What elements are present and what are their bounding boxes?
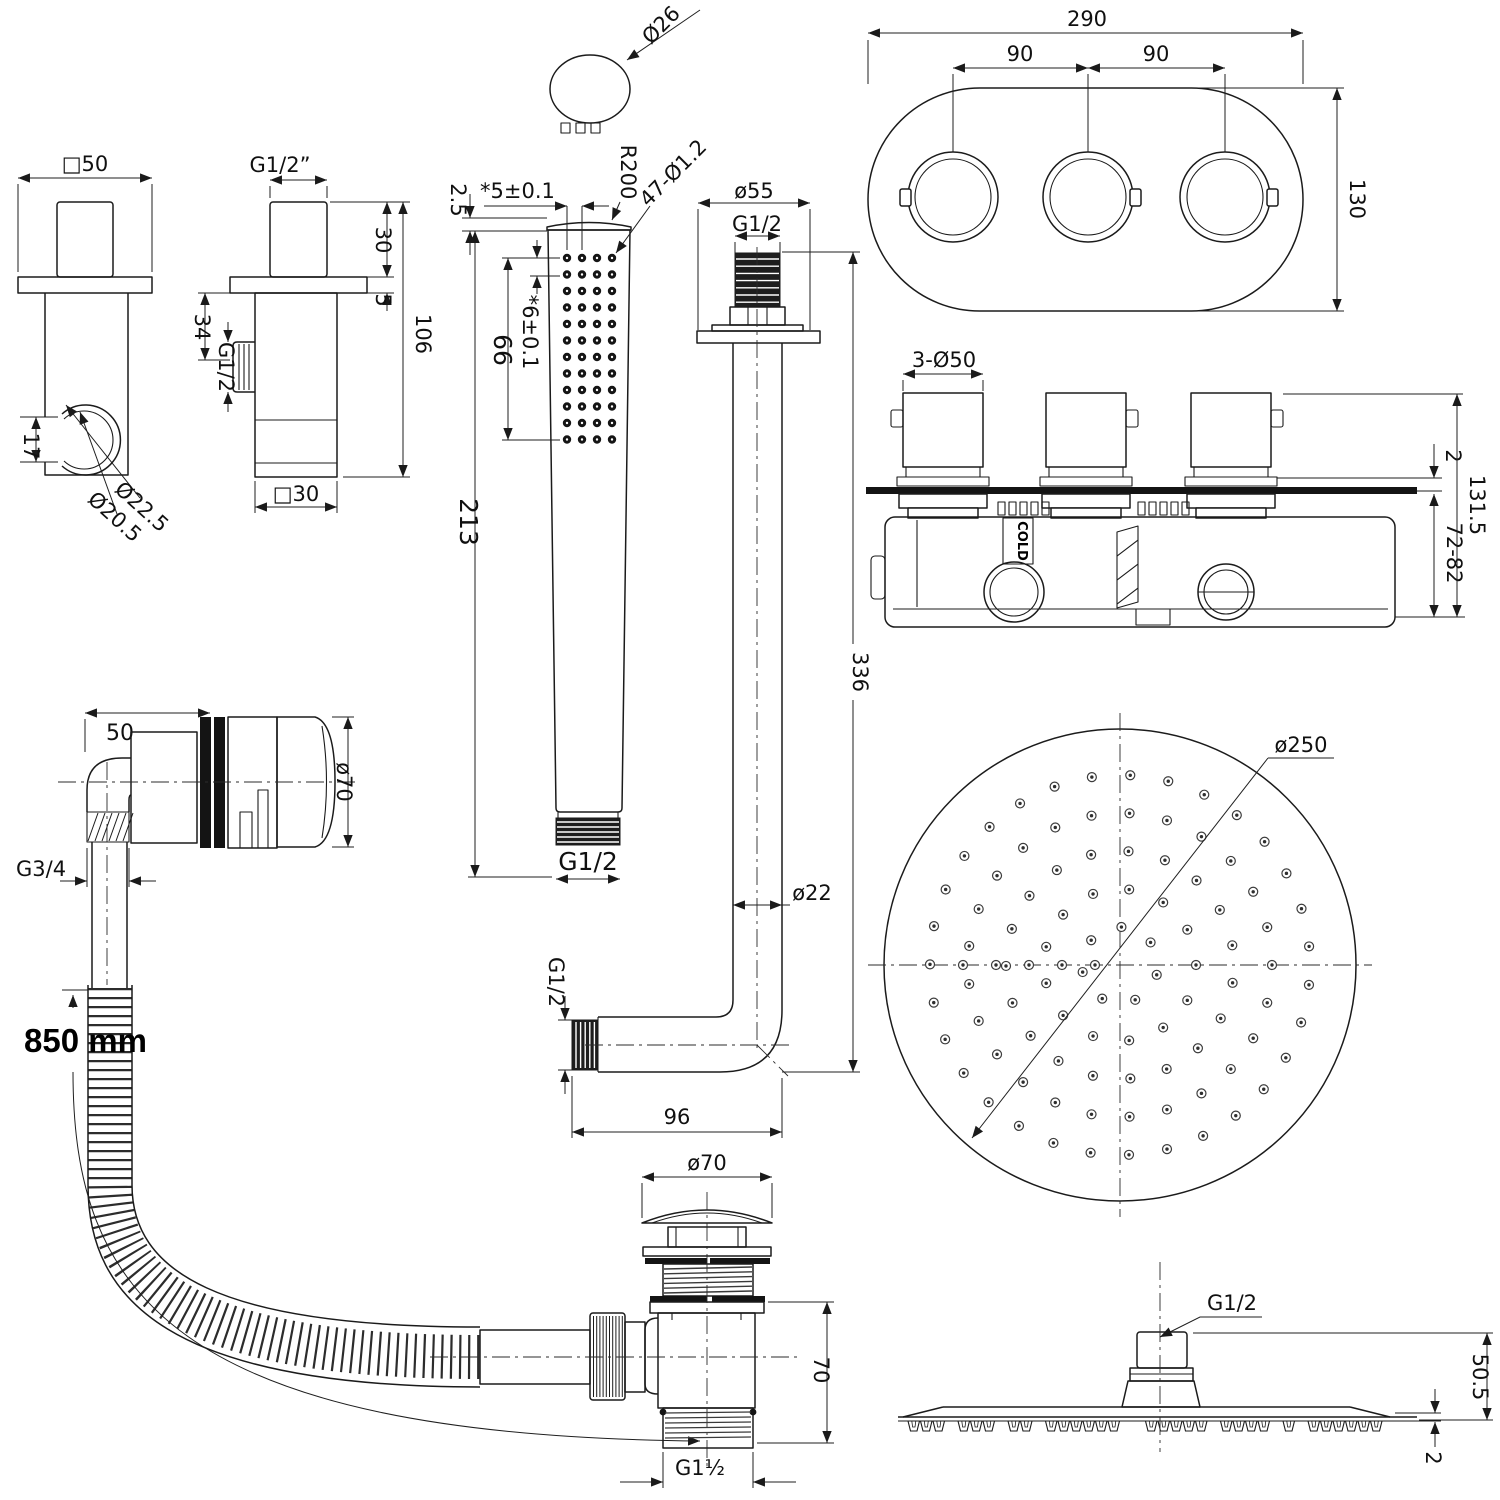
dim-side-plate-t: 2	[1421, 1451, 1445, 1464]
dim-valve-total: 131.5	[1465, 475, 1489, 535]
bath-waste-view: ø70 70	[430, 1151, 834, 1488]
dim-plate-width: 290	[1067, 7, 1107, 31]
valve-cold-label: COLD	[1014, 521, 1029, 561]
dim-overflow-thread: G3/4	[16, 857, 66, 881]
valve-knobs	[891, 393, 1283, 486]
dim-body-width: □30	[273, 482, 320, 506]
dim-valve-plate-t: 2	[1441, 449, 1465, 462]
rainhead-side-view: G1/2 50.5 2	[898, 1262, 1493, 1465]
dim-plate-height: 130	[1345, 179, 1369, 219]
dim-cap-thickness: 2.5	[446, 183, 470, 216]
dim-flange-dia: ø55	[734, 179, 774, 203]
dim-wand-thread: G1/2	[558, 847, 618, 876]
dim-head-dia: Ø26	[637, 1, 685, 49]
bracket-front-view: □50 17 Ø22.5 Ø20.5	[18, 152, 173, 547]
technical-drawing-sheet: □50 17 Ø22.5 Ø20.5 G1/2” 30 5	[0, 0, 1500, 1500]
dim-arm-thread-side: G1/2	[544, 957, 568, 1007]
dim-col-spacing: *5±0.1	[480, 179, 555, 203]
dim-wand-length: 213	[454, 498, 483, 546]
valve-body-view: 3-Ø50 COLD 2 72-82 131.5	[866, 348, 1489, 627]
dim-port-thread: G1/2	[214, 342, 238, 392]
dim-arm-thread-top: G1/2	[732, 212, 782, 236]
rainhead-side-nozzles	[908, 1421, 1382, 1431]
dim-knob-dia: 3-Ø50	[912, 348, 976, 372]
dim-stub-height: 30	[371, 227, 395, 254]
trim-plate-knob-holes	[900, 152, 1278, 242]
dim-valve-depth: 72-82	[1442, 522, 1466, 583]
dim-thread-top: G1/2”	[250, 153, 311, 177]
dim-overflow-offset: 50	[106, 721, 134, 746]
dim-slot-height: 17	[19, 433, 43, 460]
dim-plate-thickness: 5	[371, 293, 395, 306]
dim-rainhead-dia: ø250	[1275, 733, 1328, 757]
dim-arm-horiz: 96	[664, 1105, 691, 1129]
dim-port-offset: 34	[190, 314, 214, 341]
hose-length-label: 850 mm	[24, 1022, 147, 1059]
dim-total-height: 106	[411, 314, 435, 354]
dim-side-thread: G1/2	[1207, 1291, 1257, 1315]
dim-waste-cap: ø70	[687, 1151, 727, 1175]
dim-arm-length: 336	[848, 652, 872, 692]
trim-plate-view: 290 90 90 130	[868, 7, 1369, 311]
bracket-side-view: G1/2” 30 5 106 34 G1/2	[190, 153, 435, 513]
dim-knob-gap-left: 90	[1007, 42, 1034, 66]
dim-grid-height: 66	[488, 334, 517, 366]
dim-waste-height: 70	[809, 1357, 833, 1384]
dim-waste-outlet: G1½	[675, 1456, 725, 1480]
dim-bracket-width: □50	[62, 152, 109, 176]
dim-pipe-dia: ø22	[792, 881, 832, 905]
dim-cap-radius: R200	[616, 145, 640, 200]
dim-row-spacing: *6±0.1	[518, 295, 542, 370]
shower-set-diagram: □50 17 Ø22.5 Ø20.5 G1/2” 30 5	[0, 0, 1500, 1500]
dim-hole-count: 47-Ø1.2	[635, 135, 712, 212]
rainhead-top-view: ø250	[868, 713, 1372, 1217]
dim-knob-gap-right: 90	[1143, 42, 1170, 66]
dim-side-height: 50.5	[1468, 1354, 1492, 1401]
dim-overflow-cap: ø70	[332, 762, 356, 802]
handshower-nozzle-dots	[563, 254, 616, 444]
handshower-views: Ø26 G1/2 2.5 *5±0.1 R200 47-Ø1.2 66	[446, 1, 711, 879]
